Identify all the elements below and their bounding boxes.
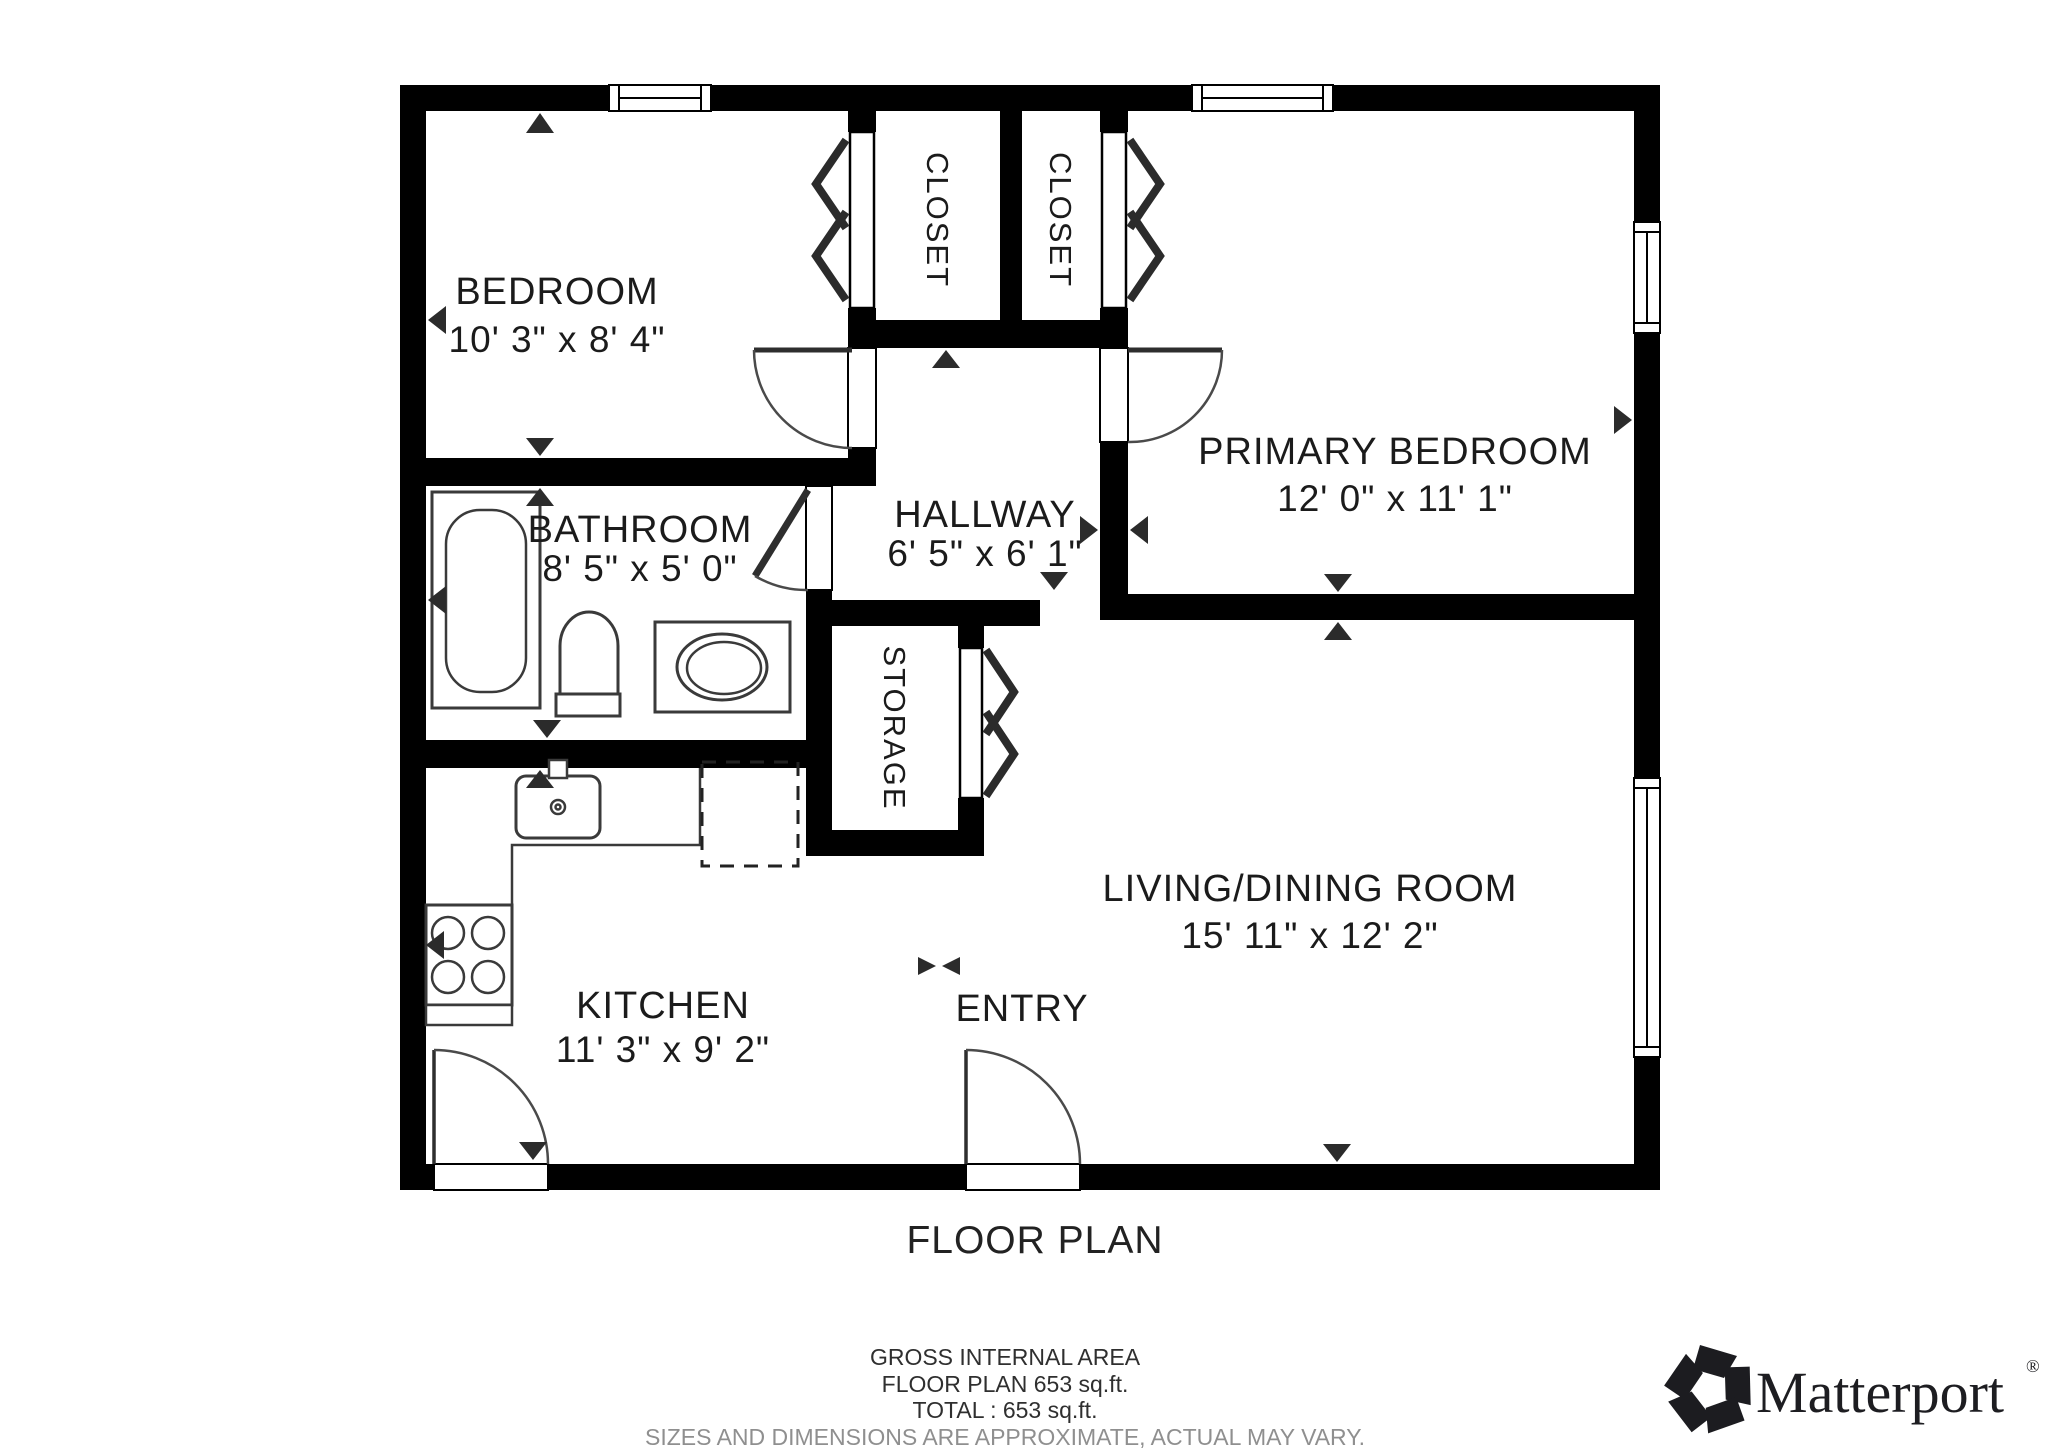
window-bedroom-top bbox=[609, 85, 711, 111]
bathtub-basin bbox=[446, 510, 526, 692]
closet-left-bifold bbox=[816, 132, 874, 308]
wall-marker-icon bbox=[1324, 622, 1352, 640]
kitchen-exterior-door bbox=[434, 1050, 548, 1190]
window-primary-top bbox=[1192, 85, 1333, 111]
bifold-chevron-icon bbox=[816, 212, 846, 300]
door-jamb bbox=[806, 486, 832, 590]
door-swing-arc bbox=[754, 350, 852, 448]
closet-right-label: CLOSET bbox=[1043, 152, 1078, 288]
hallway-dims: 6' 5" x 6' 1" bbox=[887, 533, 1082, 574]
wall-marker-icon bbox=[428, 306, 446, 334]
opening-marker-icon bbox=[942, 957, 960, 975]
primary-bedroom-label: PRIMARY BEDROOM bbox=[1198, 431, 1592, 473]
matterport-wordmark: Matterport bbox=[1756, 1360, 2004, 1425]
door-swing-arrow-icon bbox=[519, 1142, 547, 1160]
bedroom-label: BEDROOM bbox=[455, 271, 658, 313]
bifold-panel bbox=[1102, 132, 1126, 308]
wall-marker-icon bbox=[526, 438, 554, 456]
gross-internal-area-heading: GROSS INTERNAL AREA bbox=[870, 1344, 1141, 1370]
closet-left-label: CLOSET bbox=[920, 152, 955, 288]
floor-plan-area-line: FLOOR PLAN 653 sq.ft. bbox=[882, 1371, 1129, 1397]
entry-label: ENTRY bbox=[955, 988, 1088, 1030]
wall-marker-icon bbox=[526, 113, 554, 133]
matterport-logo-icon bbox=[1662, 1345, 1761, 1442]
door-jamb bbox=[434, 1164, 548, 1190]
wall-marker-icon bbox=[1040, 572, 1068, 590]
toilet-base bbox=[556, 694, 620, 716]
disclaimer-line: SIZES AND DIMENSIONS ARE APPROXIMATE, AC… bbox=[645, 1424, 1365, 1449]
wall-marker-icon bbox=[932, 350, 960, 368]
wall-marker-icon bbox=[533, 720, 561, 738]
bathroom-sink bbox=[655, 622, 790, 712]
stove bbox=[426, 905, 512, 1025]
sink-basin bbox=[677, 634, 767, 700]
kitchen-dims: 11' 3" x 9' 2" bbox=[556, 1029, 770, 1070]
bedroom-door bbox=[754, 348, 876, 448]
door-jamb bbox=[1100, 348, 1128, 442]
wall-marker-icon bbox=[1080, 516, 1098, 544]
primary-bedroom-dims: 12' 0" x 11' 1" bbox=[1277, 478, 1513, 519]
wall-marker-icon bbox=[1324, 574, 1352, 592]
bifold-panel bbox=[960, 648, 982, 798]
entry-door bbox=[966, 1050, 1080, 1190]
window-primary-right bbox=[1634, 222, 1660, 333]
bifold-chevron-icon bbox=[1130, 212, 1160, 300]
door-leaf bbox=[755, 490, 808, 576]
wall-marker-icon bbox=[1614, 406, 1632, 434]
hallway-label: HALLWAY bbox=[894, 494, 1076, 536]
dishwasher-dashed bbox=[702, 762, 798, 866]
bathtub bbox=[432, 492, 540, 708]
kitchen-label: KITCHEN bbox=[576, 985, 750, 1027]
floor-plan-page: BEDROOM 10' 3" x 8' 4" CLOSET CLOSET PRI… bbox=[0, 0, 2048, 1449]
floor-plan-canvas: BEDROOM 10' 3" x 8' 4" CLOSET CLOSET PRI… bbox=[0, 0, 2048, 1449]
closet-right-bifold bbox=[1102, 132, 1160, 308]
footer: GROSS INTERNAL AREA FLOOR PLAN 653 sq.ft… bbox=[645, 1344, 1365, 1449]
registered-trademark-icon: ® bbox=[2026, 1356, 2040, 1376]
door-jamb bbox=[966, 1164, 1080, 1190]
bathroom-door bbox=[755, 486, 832, 590]
plan-title: FLOOR PLAN bbox=[906, 1219, 1163, 1262]
bathroom-label: BATHROOM bbox=[528, 509, 753, 551]
opening-marker-icon bbox=[918, 957, 936, 975]
storage-label: STORAGE bbox=[877, 645, 912, 810]
door-jamb bbox=[848, 348, 876, 448]
stove-drawer bbox=[426, 1005, 512, 1025]
door-swing-arc bbox=[1128, 350, 1222, 442]
kitchen-sink bbox=[516, 760, 600, 838]
bifold-panel bbox=[850, 132, 874, 308]
total-area-line: TOTAL : 653 sq.ft. bbox=[913, 1397, 1098, 1423]
door-swing-arc bbox=[966, 1050, 1080, 1164]
windows bbox=[609, 85, 1660, 1057]
toilet-bowl bbox=[560, 612, 618, 694]
bifold-chevron-icon bbox=[986, 712, 1014, 796]
wall-marker-icon bbox=[1323, 1144, 1351, 1162]
window-living-right bbox=[1634, 778, 1660, 1057]
living-dining-label: LIVING/DINING ROOM bbox=[1103, 868, 1518, 910]
brand: Matterport ® bbox=[1662, 1345, 2040, 1442]
bathroom-dims: 8' 5" x 5' 0" bbox=[542, 548, 737, 589]
living-dining-dims: 15' 11" x 12' 2" bbox=[1181, 915, 1438, 956]
toilet bbox=[556, 612, 620, 716]
bedroom-dims: 10' 3" x 8' 4" bbox=[449, 319, 666, 360]
primary-bedroom-door bbox=[1100, 348, 1222, 442]
door-swing-arc bbox=[755, 576, 808, 590]
kitchen-faucet bbox=[549, 760, 567, 778]
storage-bifold bbox=[960, 648, 1014, 798]
wall-marker-icon bbox=[1130, 516, 1148, 544]
